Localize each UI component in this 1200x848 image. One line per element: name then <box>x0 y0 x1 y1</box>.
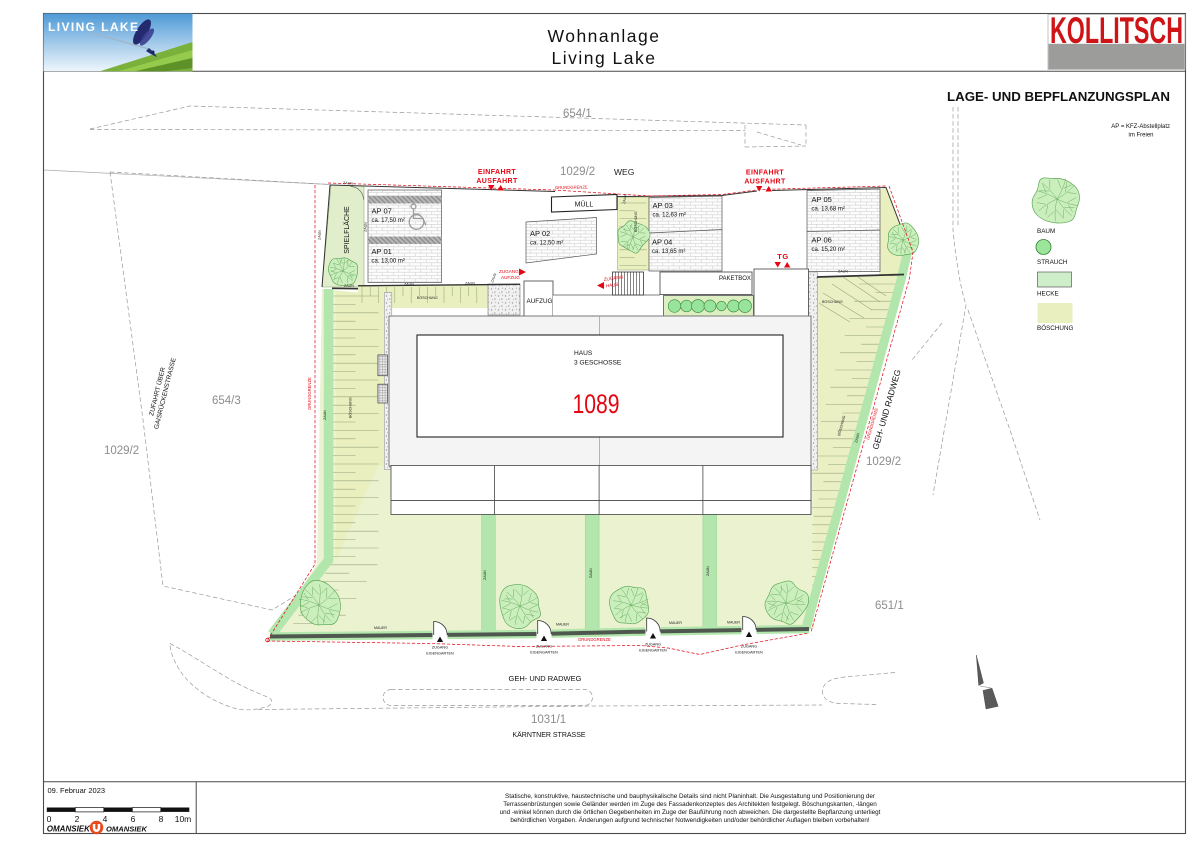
svg-text:ZAUN: ZAUN <box>706 566 710 576</box>
svg-text:ca. 15,20 m²: ca. 15,20 m² <box>812 247 845 253</box>
svg-text:10m: 10m <box>175 814 192 824</box>
svg-text:MAUER: MAUER <box>669 621 682 625</box>
svg-text:MAUER: MAUER <box>556 623 569 627</box>
svg-text:1029/2: 1029/2 <box>104 445 139 457</box>
svg-text:AUFZUG: AUFZUG <box>501 275 520 280</box>
svg-text:2: 2 <box>75 814 80 824</box>
svg-text:EINFAHRT: EINFAHRT <box>478 169 517 176</box>
svg-text:KOLLITSCH: KOLLITSCH <box>1050 10 1183 51</box>
svg-text:HECKE: HECKE <box>1037 291 1059 298</box>
svg-text:1029/2: 1029/2 <box>560 166 595 178</box>
svg-text:AUSFAHRT: AUSFAHRT <box>744 179 786 186</box>
svg-text:behördlichen Vorgaben. Änderun: behördlichen Vorgaben. Änderungen aufgru… <box>510 816 869 824</box>
svg-text:Terrassenbrüstungen sowie Gelä: Terrassenbrüstungen sowie Geländer werde… <box>503 801 877 808</box>
svg-text:GRUNDGRENZE: GRUNDGRENZE <box>578 637 611 642</box>
svg-text:AP 03: AP 03 <box>653 201 673 210</box>
svg-text:und -winkel können durch die ö: und -winkel können durch die örtlichen G… <box>500 809 881 816</box>
svg-text:AP 07: AP 07 <box>372 207 392 216</box>
svg-text:GRUNDGRENZE: GRUNDGRENZE <box>555 184 588 190</box>
svg-text:AP 06: AP 06 <box>812 236 832 245</box>
svg-text:ZAUN: ZAUN <box>483 570 487 580</box>
svg-text:BÖSCHUNG: BÖSCHUNG <box>634 211 638 232</box>
svg-text:LAGE- UND BEPFLANZUNGSPLAN: LAGE- UND BEPFLANZUNGSPLAN <box>947 90 1170 104</box>
svg-text:EIGENGARTEN: EIGENGARTEN <box>735 651 763 655</box>
svg-text:BAUM: BAUM <box>1037 228 1055 235</box>
svg-text:BÖSCHUNG: BÖSCHUNG <box>349 397 353 418</box>
svg-text:EIGENGARTEN: EIGENGARTEN <box>530 651 558 655</box>
svg-text:BÖSCHUNG: BÖSCHUNG <box>822 300 843 304</box>
svg-text:KÄRNTNER STRASSE: KÄRNTNER STRASSE <box>512 731 585 739</box>
svg-text:AP = KFZ-Abstellplatz: AP = KFZ-Abstellplatz <box>1111 124 1170 130</box>
svg-text:ZAUN: ZAUN <box>318 230 322 240</box>
svg-text:ZUGANG: ZUGANG <box>432 646 448 650</box>
svg-text:1031/1: 1031/1 <box>531 714 566 726</box>
svg-text:PAKETBOX: PAKETBOX <box>719 276 751 282</box>
svg-text:654/1: 654/1 <box>563 108 592 120</box>
svg-text:ZAUN: ZAUN <box>323 410 327 420</box>
svg-text:651/1: 651/1 <box>875 600 904 612</box>
svg-text:SPIELFLÄCHE: SPIELFLÄCHE <box>343 206 351 254</box>
svg-text:MAUER: MAUER <box>727 621 740 625</box>
svg-text:AP 01: AP 01 <box>372 247 392 256</box>
svg-text:0: 0 <box>47 814 52 824</box>
svg-text:ca. 13,00 m²: ca. 13,00 m² <box>372 259 405 265</box>
svg-text:HAUS: HAUS <box>574 350 593 357</box>
svg-text:ZAUN: ZAUN <box>465 282 475 286</box>
svg-text:Wohnanlage: Wohnanlage <box>548 26 661 46</box>
svg-text:AUSFAHRT: AUSFAHRT <box>476 178 518 185</box>
svg-text:MAUER: MAUER <box>374 626 387 630</box>
svg-text:GEH- UND RADWEG: GEH- UND RADWEG <box>509 674 582 683</box>
svg-text:STRAUCH: STRAUCH <box>1037 259 1068 266</box>
svg-text:AUFZUG: AUFZUG <box>527 298 553 305</box>
svg-text:Living Lake: Living Lake <box>551 48 656 68</box>
svg-text:TG: TG <box>777 252 788 261</box>
svg-text:654/3: 654/3 <box>212 395 241 407</box>
svg-text:ZAUN: ZAUN <box>404 283 414 287</box>
svg-text:Statische, konstruktive, haust: Statische, konstruktive, haustechnische … <box>505 793 875 800</box>
svg-text:ZUGANG: ZUGANG <box>499 269 519 274</box>
svg-text:ca. 12,50 m²: ca. 12,50 m² <box>530 241 563 247</box>
svg-text:09. Februar 2023: 09. Februar 2023 <box>48 786 106 795</box>
svg-text:BÖSCHUNG: BÖSCHUNG <box>417 296 438 300</box>
svg-text:im Freien: im Freien <box>1128 133 1153 139</box>
svg-text:ca. 13,68 m²: ca. 13,68 m² <box>812 207 845 213</box>
svg-text:6: 6 <box>131 814 136 824</box>
svg-text:EIGENGARTEN: EIGENGARTEN <box>639 649 667 653</box>
svg-text:ZAUN: ZAUN <box>589 568 593 578</box>
svg-text:ZAUN: ZAUN <box>838 270 848 274</box>
svg-text:OMANSIEK: OMANSIEK <box>47 825 91 834</box>
svg-text:EIGENGARTEN: EIGENGARTEN <box>426 652 454 656</box>
svg-text:BÖSCHUNG: BÖSCHUNG <box>1037 324 1073 332</box>
svg-text:LIVING LAKE: LIVING LAKE <box>48 20 139 34</box>
svg-text:1089: 1089 <box>573 389 620 419</box>
svg-text:ZAUN: ZAUN <box>343 181 353 186</box>
svg-text:ca. 12,63 m²: ca. 12,63 m² <box>653 213 686 219</box>
svg-text:GRUNDGRENZE: GRUNDGRENZE <box>307 377 312 410</box>
svg-text:OMANSIEK: OMANSIEK <box>106 825 147 834</box>
svg-text:ca. 17,50 m²: ca. 17,50 m² <box>372 218 405 224</box>
svg-text:AP 02: AP 02 <box>530 229 550 238</box>
svg-text:ZAUN: ZAUN <box>364 222 368 232</box>
svg-text:AP 05: AP 05 <box>812 195 832 204</box>
svg-text:8: 8 <box>159 814 164 824</box>
svg-text:4: 4 <box>103 814 108 824</box>
svg-text:1029/2: 1029/2 <box>866 456 901 468</box>
svg-text:ZAUN: ZAUN <box>344 284 354 288</box>
svg-text:AP 04: AP 04 <box>652 238 672 247</box>
svg-text:ca. 13,65 m²: ca. 13,65 m² <box>652 249 685 255</box>
svg-text:MÜLL: MÜLL <box>575 201 594 209</box>
svg-text:WEG: WEG <box>614 167 634 177</box>
svg-text:3 GESCHOSSE: 3 GESCHOSSE <box>574 360 622 367</box>
svg-text:EINFAHRT: EINFAHRT <box>746 170 785 177</box>
